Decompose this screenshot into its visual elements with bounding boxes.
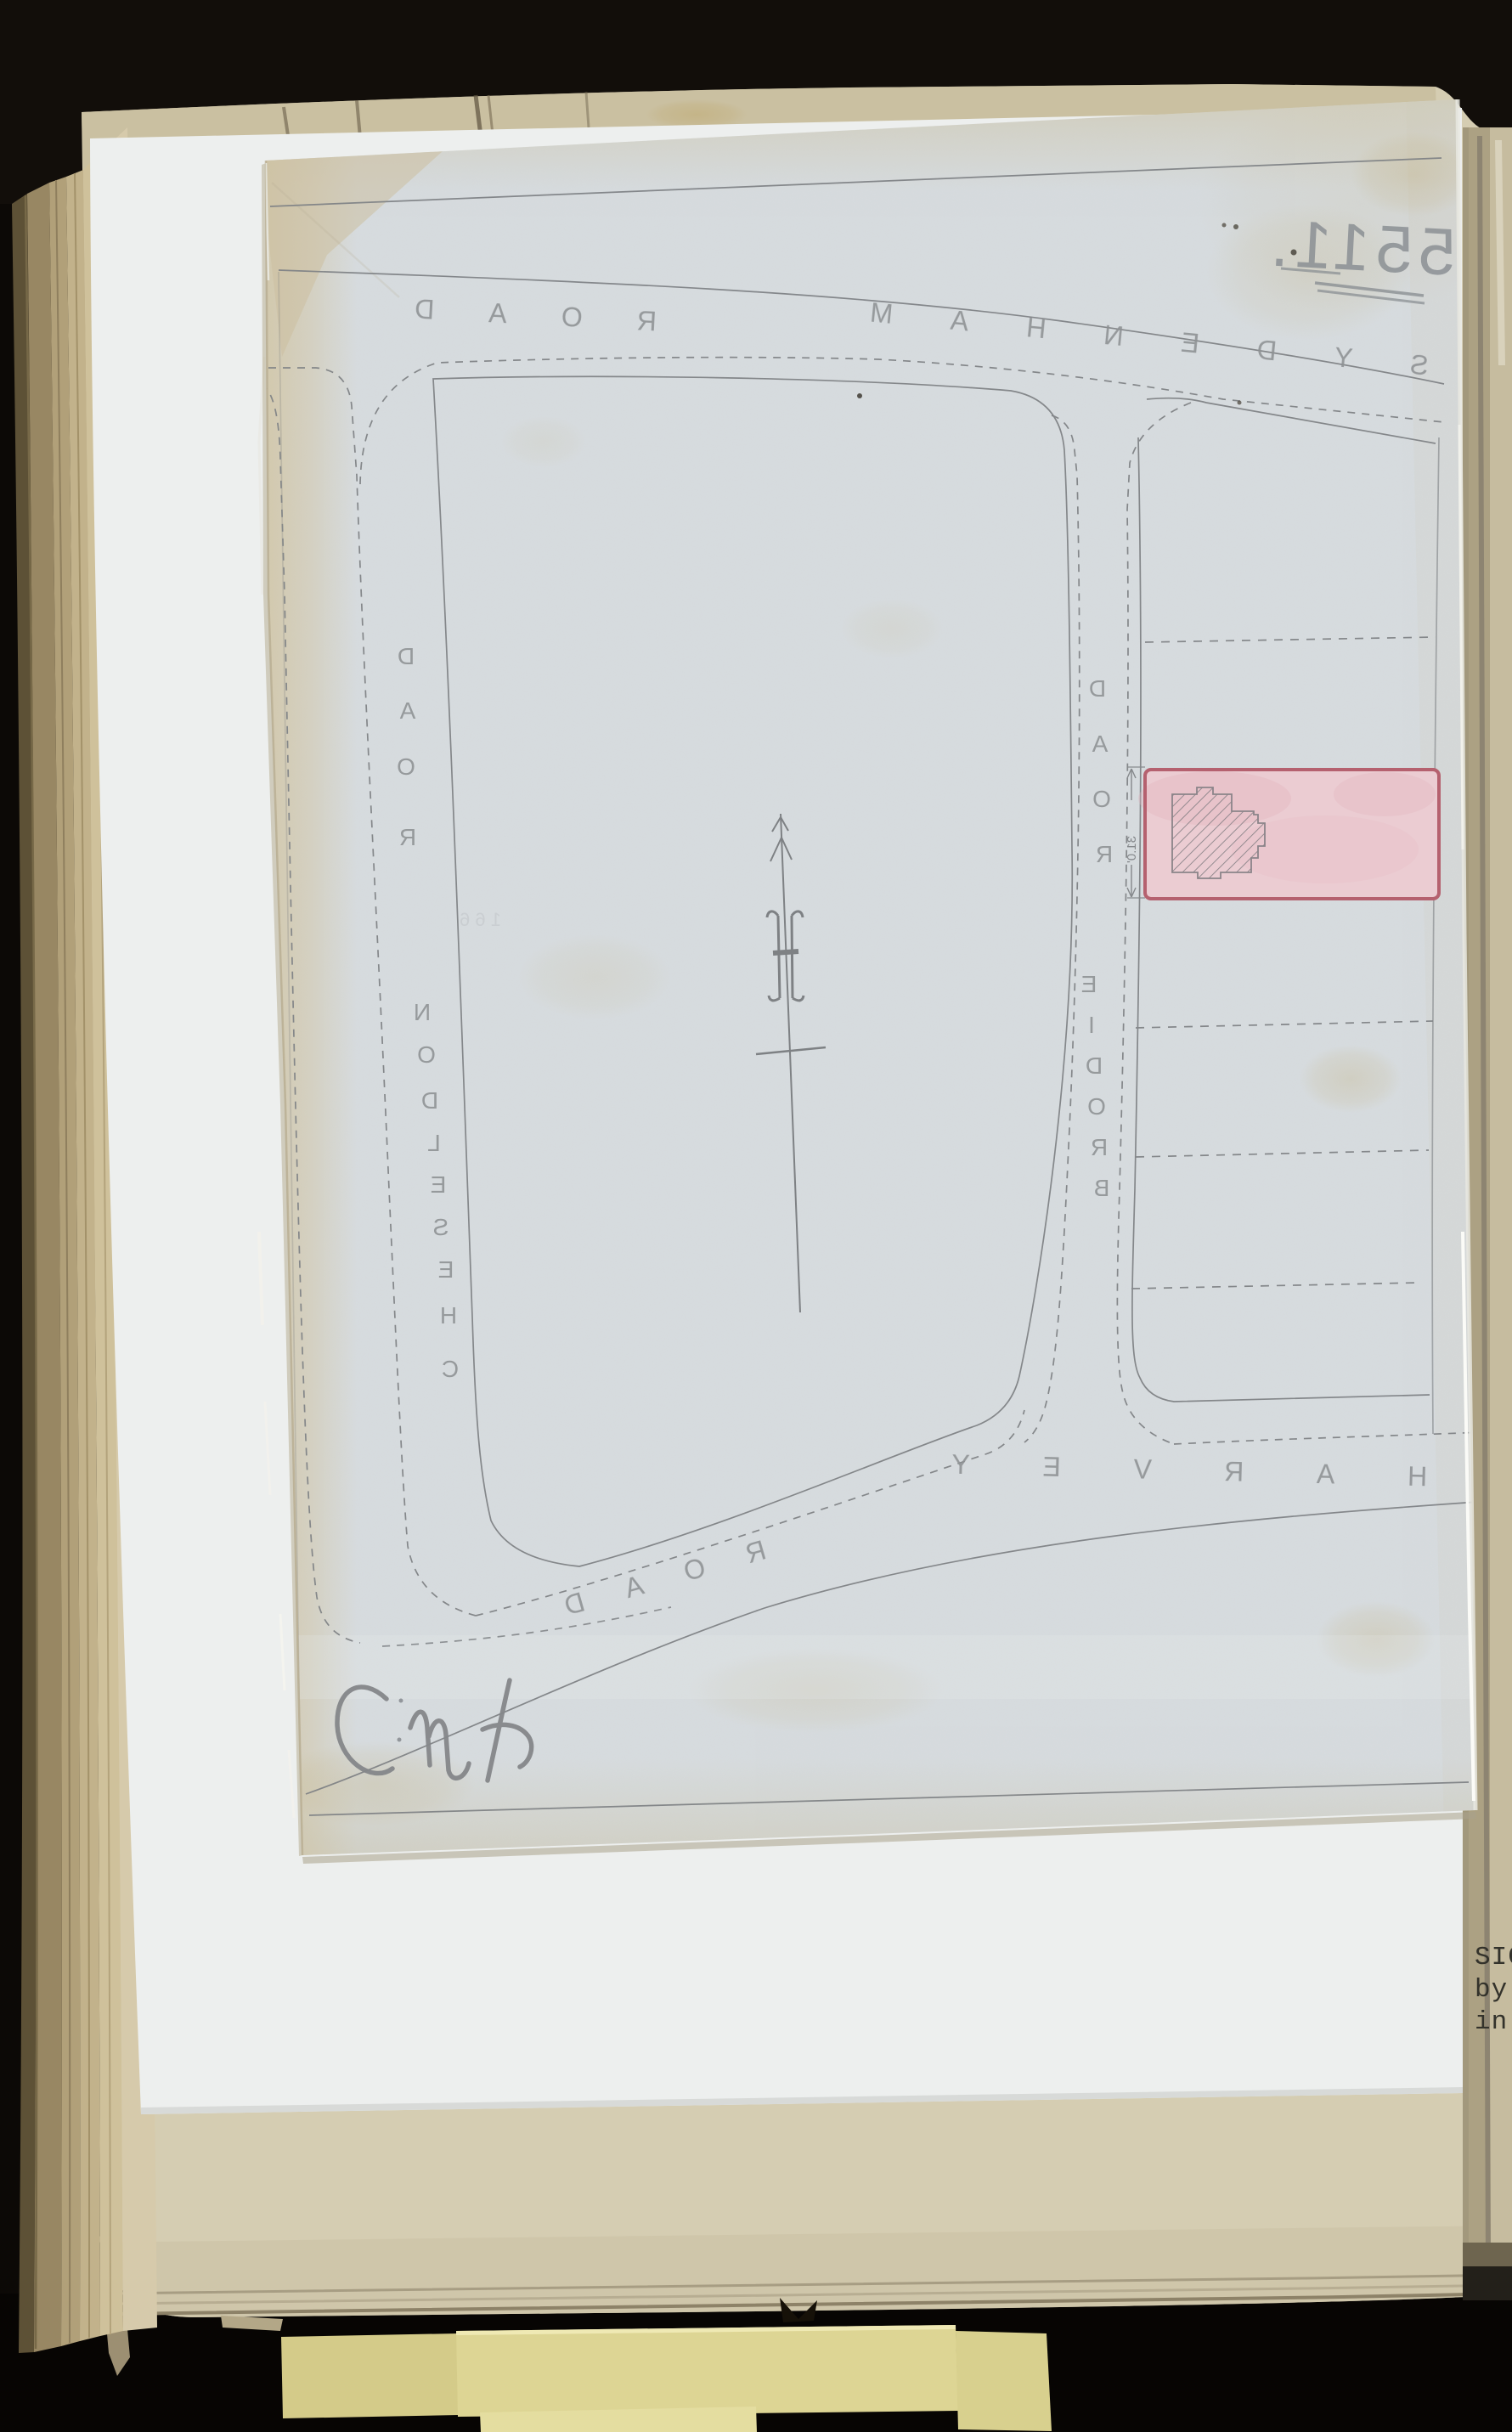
svg-text:D: D: [421, 1087, 438, 1114]
svg-text:R: R: [1091, 1134, 1108, 1160]
svg-text:A: A: [399, 697, 415, 724]
svg-text:O: O: [417, 1041, 436, 1068]
svg-text:E: E: [438, 1256, 454, 1283]
svg-text:D: D: [398, 643, 415, 669]
svg-text:O: O: [397, 753, 415, 780]
svg-text:R: R: [1096, 841, 1113, 867]
svg-text:R: R: [399, 824, 416, 850]
svg-text:D: D: [1089, 675, 1106, 702]
svg-text:SIGN: SIGN: [1475, 1943, 1512, 1972]
svg-text:in th: in th: [1475, 2007, 1512, 2037]
svg-text:C: C: [442, 1356, 459, 1382]
svg-text:E: E: [431, 1171, 447, 1198]
svg-text:O: O: [1092, 786, 1111, 812]
svg-text:O: O: [1087, 1093, 1106, 1120]
svg-text:S: S: [433, 1214, 449, 1240]
svg-text:E: E: [1081, 971, 1097, 997]
svg-text:I: I: [1088, 1012, 1095, 1038]
svg-text:B: B: [1094, 1175, 1110, 1201]
svg-text:D: D: [1086, 1052, 1103, 1079]
svg-text:H: H: [440, 1302, 457, 1329]
svg-text:5511.: 5511.: [1263, 205, 1458, 290]
svg-text:31.0': 31.0': [1125, 836, 1139, 863]
svg-text:N: N: [414, 999, 431, 1025]
svg-text:by th: by th: [1475, 1975, 1512, 2005]
svg-text:1 6 6: 1 6 6: [460, 909, 501, 930]
svg-text:A: A: [1092, 731, 1108, 757]
svg-text:L: L: [427, 1130, 441, 1156]
